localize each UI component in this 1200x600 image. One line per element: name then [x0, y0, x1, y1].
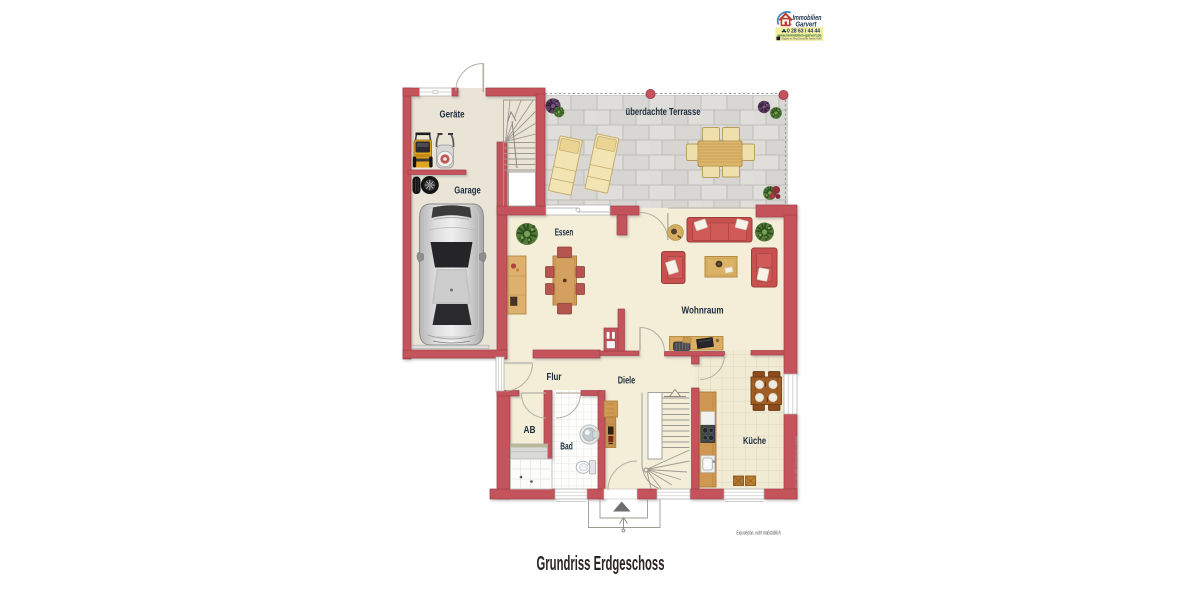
svg-text:Garage: Garage	[454, 186, 481, 197]
svg-text:Küche: Küche	[743, 436, 766, 447]
svg-text:Diele: Diele	[618, 376, 636, 387]
svg-text:Wohnraum: Wohnraum	[682, 306, 724, 317]
svg-text:Mitglied im Ring Deutscher Mak: Mitglied im Ring Deutscher Makler RDM	[782, 37, 823, 41]
svg-text:Geräte: Geräte	[440, 110, 465, 121]
svg-text:Bad: Bad	[560, 442, 573, 453]
svg-text:www.immobilien-garvert.de: www.immobilien-garvert.de	[777, 33, 822, 37]
svg-text:AB: AB	[524, 425, 536, 436]
svg-text:überdachte Terrasse: überdachte Terrasse	[626, 107, 701, 118]
svg-text:Essen: Essen	[555, 228, 574, 239]
svg-text:Grundriss Erdgeschoss: Grundriss Erdgeschoss	[537, 553, 665, 575]
svg-text:www.immobilien-garvert.de: www.immobilien-garvert.de	[795, 436, 800, 489]
svg-text:Exposéplan, nicht maßstäblich: Exposéplan, nicht maßstäblich	[737, 531, 781, 537]
svg-text:Flur: Flur	[547, 372, 562, 383]
